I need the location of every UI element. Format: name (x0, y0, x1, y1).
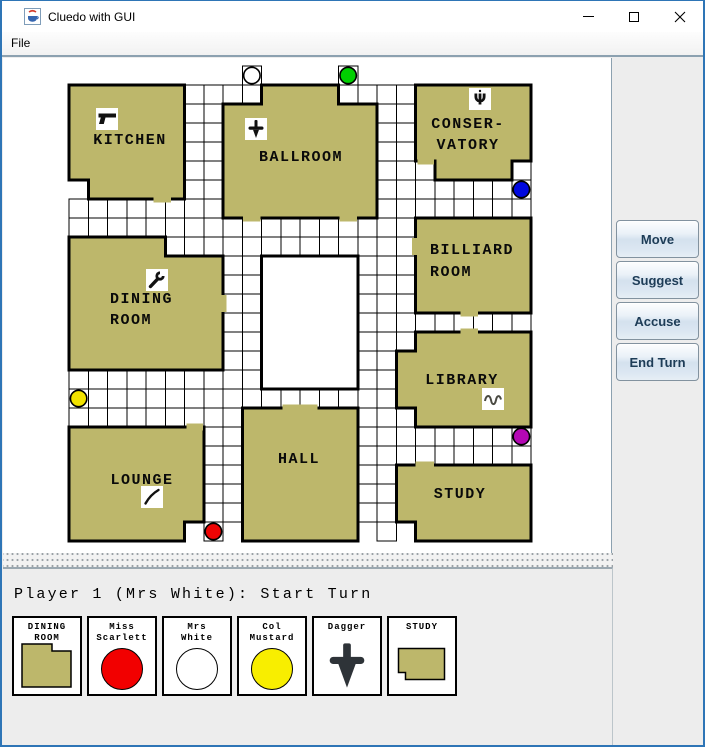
corridor-cell[interactable] (319, 389, 338, 408)
corridor-cell[interactable] (454, 427, 473, 446)
room-label-hall: HALL (278, 451, 320, 468)
corridor-cell[interactable] (223, 85, 242, 104)
corridor-cell[interactable] (473, 199, 492, 218)
corridor-cell[interactable] (88, 218, 107, 237)
corridor-cell[interactable] (204, 161, 223, 180)
corridor-cell[interactable] (377, 332, 396, 351)
corridor-cell[interactable] (185, 123, 204, 142)
corridor-cell[interactable] (377, 180, 396, 199)
corridor-cell[interactable] (165, 389, 184, 408)
corridor-cell[interactable] (204, 427, 223, 446)
window-title: Cluedo with GUI (48, 10, 135, 24)
room-label-conservatory: CONSER- (431, 116, 505, 133)
corridor-cell[interactable] (377, 465, 396, 484)
corridor-cell[interactable] (358, 427, 377, 446)
corridor-cell[interactable] (358, 389, 377, 408)
corridor-cell[interactable] (358, 446, 377, 465)
corridor-cell[interactable] (185, 85, 204, 104)
corridor-cell[interactable] (377, 389, 396, 408)
corridor-cell[interactable] (493, 313, 512, 332)
menu-file[interactable]: File (2, 32, 39, 50)
corridor-cell[interactable] (416, 427, 435, 446)
corridor-cell[interactable] (223, 408, 242, 427)
corridor-cell[interactable] (358, 351, 377, 370)
corridor-cell[interactable] (396, 161, 415, 180)
hand-panel: Player 1 (Mrs White): Start Turn DININGR… (3, 567, 613, 745)
corridor-cell[interactable] (358, 294, 377, 313)
corridor-cell[interactable] (204, 104, 223, 123)
room-label-billiard-room: BILLIARD (430, 242, 514, 259)
corridor-cell[interactable] (108, 199, 127, 218)
candlestick-icon: Ψ (469, 88, 491, 110)
action-panel: Move Suggest Accuse End Turn (612, 57, 703, 745)
corridor-cell[interactable] (223, 427, 242, 446)
corridor-cell[interactable] (396, 313, 415, 332)
corridor-cell[interactable] (416, 180, 435, 199)
corridor-cell[interactable] (223, 484, 242, 503)
corridor-cell[interactable] (223, 218, 242, 237)
corridor-cell[interactable] (377, 199, 396, 218)
minimize-icon (583, 16, 594, 17)
corridor-cell[interactable] (396, 446, 415, 465)
corridor-cell[interactable] (223, 370, 242, 389)
close-button[interactable] (657, 1, 703, 32)
corridor-cell[interactable] (127, 389, 146, 408)
card-title: DININGROOM (14, 622, 80, 644)
corridor-cell[interactable] (185, 142, 204, 161)
move-button[interactable]: Move (616, 220, 699, 258)
corridor-cell[interactable] (223, 503, 242, 522)
java-app-icon (24, 8, 41, 25)
character-token-figure (101, 648, 143, 690)
corridor-cell[interactable] (396, 275, 415, 294)
corridor-cell[interactable] (493, 446, 512, 465)
corridor-cell[interactable] (108, 370, 127, 389)
corridor-cell[interactable] (185, 237, 204, 256)
card-miss-scarlett: MissScarlett (87, 616, 157, 696)
corridor-cell[interactable] (185, 161, 204, 180)
corridor-cell[interactable] (358, 484, 377, 503)
cellar-area (262, 256, 358, 389)
dagger-icon (245, 118, 267, 140)
room-label-study: STUDY (434, 486, 487, 503)
corridor-cell[interactable] (223, 351, 242, 370)
token-mrs-peacock (513, 181, 529, 197)
dagger-figure (323, 641, 371, 691)
corridor-cell[interactable] (127, 218, 146, 237)
corridor-cell[interactable] (416, 199, 435, 218)
room-label-dining-room: DINING (110, 291, 173, 308)
corridor-cell[interactable] (358, 313, 377, 332)
corridor-cell[interactable] (146, 218, 165, 237)
corridor-cell[interactable] (146, 389, 165, 408)
corridor-cell[interactable] (377, 123, 396, 142)
status-text: Player 1 (Mrs White): Start Turn (14, 586, 372, 603)
corridor-cell[interactable] (300, 237, 319, 256)
corridor-cell[interactable] (204, 142, 223, 161)
corridor-cell[interactable] (377, 427, 396, 446)
corridor-cell[interactable] (435, 313, 454, 332)
corridor-cell[interactable] (396, 218, 415, 237)
corridor-cell[interactable] (204, 408, 223, 427)
corridor-cell[interactable] (262, 237, 281, 256)
corridor-cell[interactable] (223, 389, 242, 408)
corridor-cell[interactable] (108, 218, 127, 237)
corridor-cell[interactable] (377, 256, 396, 275)
corridor-cell[interactable] (435, 180, 454, 199)
corridor-cell[interactable] (377, 161, 396, 180)
corridor-cell[interactable] (242, 351, 261, 370)
corridor-cell[interactable] (396, 85, 415, 104)
corridor-cell[interactable] (512, 199, 531, 218)
suggest-button[interactable]: Suggest (616, 261, 699, 299)
corridor-cell[interactable] (223, 256, 242, 275)
maximize-icon (629, 12, 639, 22)
corridor-cell[interactable] (262, 389, 281, 408)
corridor-cell[interactable] (358, 332, 377, 351)
corridor-cell[interactable] (88, 370, 107, 389)
corridor-cell[interactable] (396, 199, 415, 218)
corridor-cell[interactable] (204, 370, 223, 389)
corridor-cell[interactable] (223, 275, 242, 294)
corridor-cell[interactable] (262, 218, 281, 237)
corridor-cell[interactable] (396, 294, 415, 313)
corridor-cell[interactable] (242, 85, 261, 104)
corridor-cell[interactable] (377, 275, 396, 294)
corridor-cell[interactable] (493, 199, 512, 218)
rope-icon (482, 388, 504, 410)
room-label-dining-room: ROOM (110, 312, 152, 329)
corridor-cell[interactable] (242, 332, 261, 351)
corridor-cell[interactable] (185, 104, 204, 123)
corridor-cell[interactable] (358, 256, 377, 275)
lead-pipe-icon (141, 486, 163, 508)
app-window: Cluedo with GUI File KITCHENBALLROOMCONS… (0, 0, 705, 747)
corridor-cell[interactable] (339, 389, 358, 408)
corridor-cell[interactable] (88, 408, 107, 427)
corridor-cell[interactable] (377, 503, 396, 522)
corridor-cell[interactable] (204, 123, 223, 142)
corridor-cell[interactable] (377, 408, 396, 427)
corridor-cell[interactable] (435, 199, 454, 218)
game-board[interactable]: KITCHENBALLROOMCONSER-VATORYDININGROOMBI… (3, 58, 611, 553)
card-col-mustard: ColMustard (237, 616, 307, 696)
corridor-cell[interactable] (204, 199, 223, 218)
corridor-cell[interactable] (493, 427, 512, 446)
corridor-cell[interactable] (108, 408, 127, 427)
svg-text:Ψ: Ψ (474, 91, 487, 109)
corridor-cell[interactable] (377, 313, 396, 332)
card-title: STUDY (389, 622, 455, 633)
corridor-cell[interactable] (127, 408, 146, 427)
room-label-library: LIBRARY (425, 372, 499, 389)
token-rev-green (340, 67, 356, 83)
room-label-kitchen: KITCHEN (93, 132, 167, 149)
corridor-cell[interactable] (108, 389, 127, 408)
corridor-cell[interactable] (165, 218, 184, 237)
maximize-button[interactable] (611, 1, 657, 32)
room-label-billiard-room: ROOM (430, 264, 472, 281)
room-shape-figure (21, 643, 73, 688)
corridor-cell[interactable] (69, 218, 88, 237)
card-title: MissScarlett (89, 622, 155, 644)
accuse-button[interactable]: Accuse (616, 302, 699, 340)
corridor-cell[interactable] (242, 313, 261, 332)
close-icon (674, 11, 686, 23)
corridor-cell[interactable] (358, 465, 377, 484)
corridor-cell[interactable] (223, 313, 242, 332)
corridor-cell[interactable] (281, 237, 300, 256)
corridor-cell[interactable] (204, 503, 223, 522)
corridor-cell[interactable] (319, 218, 338, 237)
corridor-cell[interactable] (185, 389, 204, 408)
corridor-cell[interactable] (242, 294, 261, 313)
corridor-cell[interactable] (88, 199, 107, 218)
corridor-cell[interactable] (204, 389, 223, 408)
character-token-figure (251, 648, 293, 690)
corridor-cell[interactable] (358, 370, 377, 389)
corridor-cell[interactable] (473, 427, 492, 446)
corridor-cell[interactable] (300, 218, 319, 237)
corridor-cell[interactable] (454, 446, 473, 465)
corridor-cell[interactable] (377, 218, 396, 237)
corridor-cell[interactable] (512, 446, 531, 465)
corridor-cell[interactable] (358, 408, 377, 427)
corridor-cell[interactable] (185, 199, 204, 218)
corridor-cell[interactable] (146, 408, 165, 427)
corridor-cell[interactable] (396, 142, 415, 161)
corridor-cell[interactable] (242, 237, 261, 256)
corridor-cell[interactable] (146, 370, 165, 389)
corridor-cell[interactable] (512, 161, 531, 180)
corridor-cell[interactable] (512, 313, 531, 332)
workspace: KITCHENBALLROOMCONSER-VATORYDININGROOMBI… (2, 55, 703, 745)
corridor-cell[interactable] (454, 180, 473, 199)
corridor-cell[interactable] (377, 237, 396, 256)
corridor-cell[interactable] (396, 123, 415, 142)
corridor-cell[interactable] (319, 237, 338, 256)
corridor-cell[interactable] (223, 446, 242, 465)
corridor-cell[interactable] (165, 237, 184, 256)
corridor-cell[interactable] (435, 427, 454, 446)
corridor-cell[interactable] (165, 408, 184, 427)
corridor-cell[interactable] (69, 199, 88, 218)
token-prof-plum (513, 428, 529, 444)
corridor-cell[interactable] (396, 180, 415, 199)
corridor-cell[interactable] (377, 104, 396, 123)
corridor-cell[interactable] (377, 85, 396, 104)
corridor-cell[interactable] (69, 408, 88, 427)
menu-bar: File (2, 32, 703, 55)
corridor-cell[interactable] (127, 370, 146, 389)
corridor-cell[interactable] (242, 256, 261, 275)
corridor-cell[interactable] (204, 218, 223, 237)
corridor-cell[interactable] (377, 370, 396, 389)
corridor-cell[interactable] (185, 218, 204, 237)
corridor-cell[interactable] (377, 351, 396, 370)
corridor-cell[interactable] (377, 522, 396, 541)
card-title: Dagger (314, 622, 380, 633)
revolver-icon (96, 108, 118, 130)
corridor-cell[interactable] (339, 85, 358, 104)
end-turn-button[interactable]: End Turn (616, 343, 699, 381)
token-col-mustard (70, 390, 86, 406)
corridor-cell[interactable] (242, 370, 261, 389)
corridor-cell[interactable] (204, 484, 223, 503)
card-study: STUDY (387, 616, 457, 696)
corridor-cell[interactable] (223, 237, 242, 256)
corridor-cell[interactable] (377, 446, 396, 465)
room-study[interactable] (396, 465, 531, 541)
board-panel: KITCHENBALLROOMCONSER-VATORYDININGROOMBI… (3, 58, 612, 554)
corridor-cell[interactable] (493, 180, 512, 199)
corridor-cell[interactable] (242, 389, 261, 408)
corridor-cell[interactable] (473, 446, 492, 465)
corridor-cell[interactable] (358, 503, 377, 522)
room-shape-figure (398, 648, 447, 682)
corridor-cell[interactable] (69, 370, 88, 389)
corridor-cell[interactable] (416, 313, 435, 332)
corridor-cell[interactable] (204, 237, 223, 256)
token-mrs-white (244, 67, 260, 83)
corridor-cell[interactable] (377, 484, 396, 503)
corridor-cell[interactable] (358, 85, 377, 104)
window-controls (565, 1, 703, 32)
card-mrs-white: MrsWhite (162, 616, 232, 696)
corridor-cell[interactable] (204, 180, 223, 199)
corridor-cell[interactable] (358, 275, 377, 294)
corridor-cell[interactable] (339, 237, 358, 256)
corridor-cell[interactable] (127, 199, 146, 218)
title-bar: Cluedo with GUI (2, 1, 703, 32)
corridor-cell[interactable] (396, 408, 415, 427)
corridor-cell[interactable] (204, 85, 223, 104)
room-hall[interactable] (242, 408, 358, 541)
corridor-cell[interactable] (223, 465, 242, 484)
corridor-cell[interactable] (377, 142, 396, 161)
token-miss-scarlett (205, 523, 221, 539)
corridor-cell[interactable] (358, 218, 377, 237)
corridor-cell[interactable] (358, 237, 377, 256)
room-label-conservatory: VATORY (436, 137, 499, 154)
corridor-cell[interactable] (377, 294, 396, 313)
card-dagger: Dagger (312, 616, 382, 696)
corridor-cell[interactable] (242, 275, 261, 294)
card-title: ColMustard (239, 622, 305, 644)
card-dining-room: DININGROOM (12, 616, 82, 696)
corridor-cell[interactable] (473, 180, 492, 199)
corridor-cell[interactable] (396, 104, 415, 123)
corridor-cell[interactable] (185, 180, 204, 199)
corridor-cell[interactable] (454, 199, 473, 218)
corridor-cell[interactable] (396, 256, 415, 275)
room-label-ballroom: BALLROOM (259, 149, 343, 166)
wrench-icon (146, 269, 168, 291)
corridor-cell[interactable] (88, 389, 107, 408)
minimize-button[interactable] (565, 1, 611, 32)
corridor-cell[interactable] (185, 370, 204, 389)
corridor-cell[interactable] (396, 332, 415, 351)
corridor-cell[interactable] (396, 427, 415, 446)
corridor-cell[interactable] (223, 332, 242, 351)
card-title: MrsWhite (164, 622, 230, 644)
corridor-cell[interactable] (165, 370, 184, 389)
corridor-cell[interactable] (204, 465, 223, 484)
corridor-cell[interactable] (204, 446, 223, 465)
split-divider[interactable] (3, 553, 613, 567)
corridor-cell[interactable] (435, 446, 454, 465)
corridor-cell[interactable] (281, 218, 300, 237)
character-token-figure (176, 648, 218, 690)
